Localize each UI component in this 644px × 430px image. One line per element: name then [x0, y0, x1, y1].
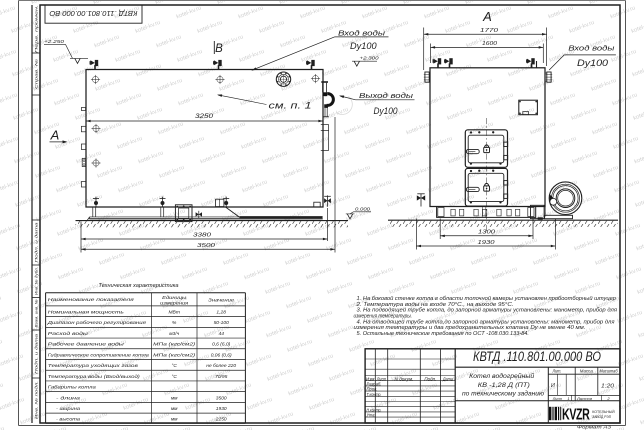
svg-text:50-100: 50-100: [214, 320, 230, 326]
svg-text:КВ -1,28 Д (ПТ): КВ -1,28 Д (ПТ): [478, 382, 530, 389]
svg-text:Взам. инв. №: Взам. инв. №: [35, 299, 39, 327]
svg-text:B: B: [215, 43, 223, 55]
svg-text:МПа (кгс/см2): МПа (кгс/см2): [153, 352, 195, 358]
svg-text:- длина: - длина: [56, 395, 80, 401]
svg-text:+2.250: +2.250: [44, 39, 65, 44]
svg-text:Гидравлическое сопротивление к: Гидравлическое сопротивление котла: [48, 352, 149, 358]
svg-text:Значение: Значение: [208, 298, 234, 304]
svg-text:КОТЕЛЬНЫЙ: КОТЕЛЬНЫЙ: [592, 410, 615, 414]
svg-text:Номинальная мощность: Номинальная мощность: [48, 310, 125, 316]
svg-text:не более 220: не более 220: [206, 363, 236, 369]
svg-text:°С: °С: [171, 363, 177, 369]
svg-text:Температура уходящих газов: Температура уходящих газов: [48, 363, 139, 369]
svg-text:Dy100: Dy100: [577, 58, 609, 69]
svg-text:Котел водогрейный: Котел водогрейный: [469, 372, 535, 380]
svg-text:3250: 3250: [195, 113, 214, 120]
svg-text:3500: 3500: [216, 395, 227, 401]
svg-text:1930: 1930: [478, 240, 496, 246]
svg-text:KVZR: KVZR: [562, 406, 590, 423]
svg-text:И: И: [551, 383, 555, 389]
svg-text:Масштаб: Масштаб: [600, 369, 619, 374]
svg-text:1600: 1600: [482, 41, 498, 47]
svg-text:Листов: Листов: [576, 396, 592, 401]
svg-text:Габариты котла: Габариты котла: [48, 385, 96, 391]
svg-text:Утв.: Утв.: [367, 413, 376, 418]
svg-text:Dy100: Dy100: [350, 41, 377, 51]
svg-text:Расход воды: Расход воды: [48, 331, 89, 337]
svg-text:1,28: 1,28: [216, 310, 226, 316]
svg-text:A: A: [50, 128, 60, 143]
svg-text:МПа (кгс/см2): МПа (кгс/см2): [153, 342, 195, 348]
svg-text:Инв. № дубл.: Инв. № дубл.: [35, 267, 39, 295]
svg-text:Диапазон рабочего регулировани: Диапазон рабочего регулирования: [47, 320, 147, 326]
svg-text:Дата: Дата: [442, 376, 453, 381]
svg-text:Справ. №: Справ. №: [35, 59, 39, 89]
svg-text:Вход воды: Вход воды: [568, 43, 615, 52]
svg-text:3500: 3500: [197, 243, 216, 249]
svg-text:Масса: Масса: [580, 369, 594, 374]
svg-text:Лист: Лист: [552, 396, 563, 401]
svg-text:A: A: [482, 9, 492, 24]
svg-text:Формат А3: Формат А3: [577, 425, 612, 430]
svg-text:%: %: [172, 320, 177, 326]
svg-text:КВТД .110.801.00.000 ВО: КВТД .110.801.00.000 ВО: [49, 9, 137, 18]
svg-text:по техническому заданию: по техническому заданию: [462, 390, 544, 398]
svg-text:5. Остальные технические треб: 5. Остальные технические требования по О…: [357, 331, 530, 337]
svg-text:70/95: 70/95: [215, 374, 228, 380]
svg-text:0,06 (0,6): 0,06 (0,6): [211, 352, 232, 358]
svg-text:1770: 1770: [480, 28, 499, 34]
svg-text:ЗАВОД РЭП: ЗАВОД РЭП: [592, 415, 611, 419]
svg-text:мм: мм: [171, 396, 178, 401]
svg-text:+2.300: +2.300: [360, 55, 380, 60]
svg-text:3380: 3380: [193, 233, 212, 239]
svg-text:Подп. и дата: Подп. и дата: [35, 223, 39, 263]
svg-text:Инв. № подл.: Инв. № подл.: [35, 381, 39, 419]
svg-text:°С: °С: [171, 374, 177, 380]
svg-text:1:20: 1:20: [601, 383, 615, 389]
svg-text:мм: мм: [171, 418, 178, 423]
svg-text:44: 44: [218, 331, 224, 337]
svg-text:измерения: измерения: [160, 302, 188, 307]
svg-text:см. п. 1: см. п. 1: [269, 101, 312, 111]
svg-text:Вход воды: Вход воды: [338, 28, 386, 37]
svg-text:Выход воды: Выход воды: [359, 91, 414, 100]
svg-text:Единицы: Единицы: [162, 295, 186, 301]
svg-text:N докум.: N докум.: [395, 376, 414, 381]
svg-text:м3/ч: м3/ч: [169, 331, 179, 337]
svg-text:1930: 1930: [216, 406, 227, 412]
svg-text:Подп. и дата: Подп. и дата: [35, 334, 39, 374]
svg-text:Подп.: Подп.: [424, 376, 436, 381]
svg-text:- ширина: - ширина: [56, 407, 80, 412]
svg-text:Dy100: Dy100: [374, 106, 399, 116]
svg-text:МВт: МВт: [168, 310, 179, 316]
svg-text:1: 1: [567, 396, 569, 401]
svg-text:2250: 2250: [215, 417, 227, 423]
svg-text:Перв. примен.: Перв. примен.: [35, 5, 39, 53]
svg-text:0,6 (6,0): 0,6 (6,0): [212, 342, 231, 348]
svg-text:0.000: 0.000: [355, 206, 371, 211]
svg-text:Наименование показателя: Наименование показателя: [48, 297, 135, 303]
svg-text:Техническая характеристика: Техническая характеристика: [99, 283, 179, 289]
svg-text:мм: мм: [171, 407, 178, 412]
svg-text:1300: 1300: [478, 230, 496, 236]
svg-text:Т.контр.: Т.контр.: [367, 392, 382, 397]
svg-text:КВТД .110.801.00.000 ВО: КВТД .110.801.00.000 ВО: [473, 349, 601, 364]
svg-text:Рабочее давление воды: Рабочее давление воды: [48, 342, 125, 348]
svg-text:Температура воды (Вход/выход): Температура воды (Вход/выход): [48, 374, 140, 380]
svg-text:- высота: - высота: [56, 418, 80, 423]
svg-text:Лит.: Лит.: [552, 369, 562, 374]
